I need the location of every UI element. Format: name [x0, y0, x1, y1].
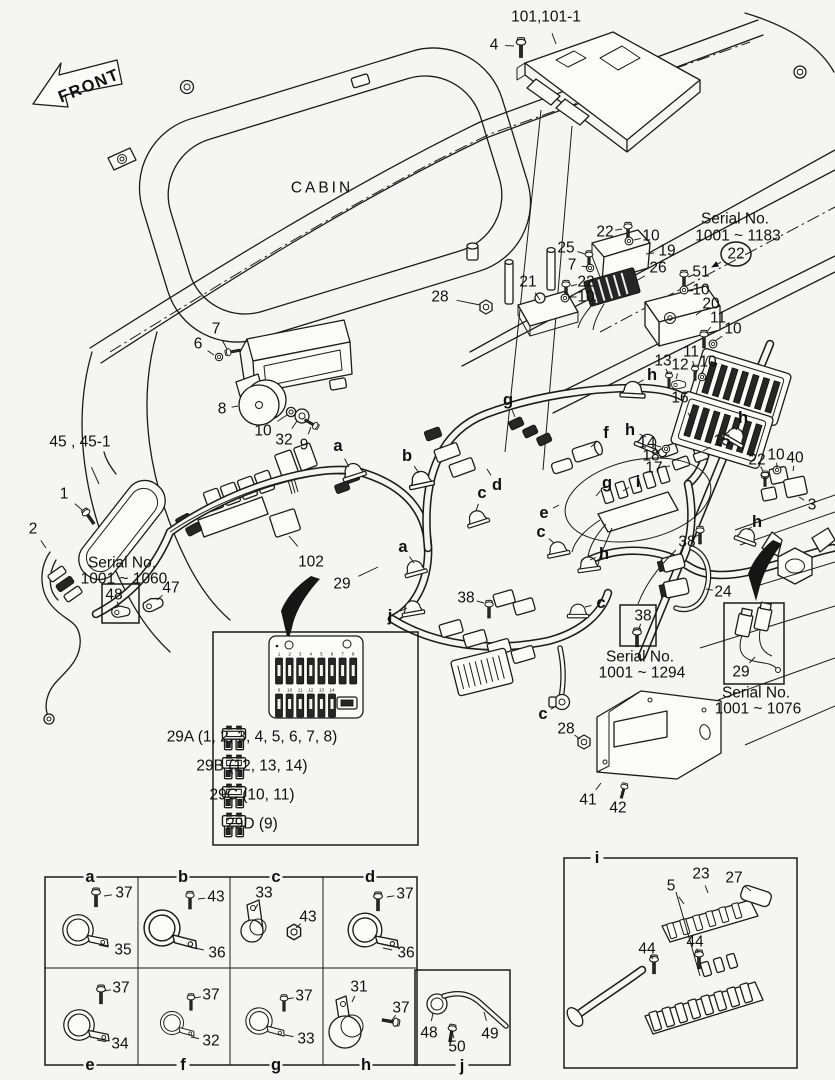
svg-text:Serial No.: Serial No. [701, 211, 769, 228]
callout-p38-boxed: 38 [634, 608, 651, 630]
svg-text:2: 2 [29, 521, 38, 538]
svg-text:j: j [459, 1057, 465, 1075]
svg-text:1: 1 [60, 486, 69, 503]
svg-text:7: 7 [212, 321, 221, 338]
callout-i-5: 5 [667, 878, 684, 905]
svg-text:j: j [387, 607, 393, 625]
svg-text:a: a [85, 868, 95, 886]
callout-cg-33: 33 [285, 1031, 315, 1048]
callout-p51: 51 [688, 264, 710, 281]
mounting-bracket-41 [597, 691, 721, 779]
callout-p42: 42 [609, 791, 626, 817]
svg-text:h: h [738, 409, 748, 427]
callout-cc-43: 43 [296, 909, 317, 929]
callout-p25: 25 [557, 240, 585, 257]
callout-ca-37: 37 [104, 885, 133, 902]
svg-text:CABIN: CABIN [291, 180, 353, 197]
svg-text:Serial No.: Serial No. [88, 555, 156, 572]
svg-text:c: c [536, 523, 545, 541]
svg-text:48: 48 [420, 1025, 437, 1042]
callout-sn1294-1: Serial No. [606, 649, 674, 666]
svg-text:g: g [602, 474, 612, 492]
svg-text:19: 19 [658, 243, 675, 260]
svg-text:Serial No.: Serial No. [606, 649, 674, 666]
fuse-legend-row-29C: 29C (10, 11) [209, 784, 294, 808]
callout-p7b: 7 [212, 321, 227, 350]
svg-text:i: i [595, 849, 600, 867]
callout-tbl-c: c [270, 868, 283, 886]
callout-tbl-a: a [84, 868, 97, 886]
svg-text:8: 8 [218, 401, 227, 418]
callout-sn1183-1: Serial No. [701, 211, 769, 228]
connector-pointer-arrow [748, 540, 782, 601]
svg-text:1001 ~ 1060: 1001 ~ 1060 [81, 571, 168, 588]
callout-p28b: 28 [557, 721, 580, 740]
svg-text:27: 27 [725, 870, 742, 887]
svg-text:29B (12, 13, 14): 29B (12, 13, 14) [196, 758, 307, 775]
fuse-legend: 29A (1, 2, 3, 4, 5, 6, 7, 8)29B (12, 13,… [167, 726, 338, 837]
svg-text:37: 37 [112, 980, 129, 997]
svg-text:c: c [477, 484, 486, 502]
svg-text:29: 29 [333, 576, 350, 593]
svg-text:17: 17 [645, 460, 662, 477]
wire-assembly-2 [42, 552, 83, 724]
svg-text:5: 5 [667, 878, 676, 895]
svg-text:22: 22 [748, 452, 765, 469]
svg-text:25: 25 [557, 240, 574, 257]
svg-text:g: g [503, 391, 513, 409]
svg-text:11: 11 [683, 344, 699, 361]
svg-text:33: 33 [255, 885, 272, 902]
svg-text:37: 37 [295, 988, 312, 1005]
fuse-legend-row-29D: 29D (9) [222, 813, 277, 837]
callout-ch-37: 37 [392, 1000, 410, 1021]
svg-text:9: 9 [278, 688, 281, 693]
callout-p21: 21 [519, 274, 540, 301]
svg-text:36: 36 [397, 945, 414, 962]
callout-c1: c [476, 484, 487, 511]
callout-i-44b: 44 [686, 934, 704, 954]
callout-tbl-f: f [177, 1056, 190, 1074]
callout-p6: 6 [194, 336, 214, 356]
callout-sn1294-2: 1001 ~ 1294 [599, 665, 686, 682]
svg-text:36: 36 [208, 945, 225, 962]
svg-text:34: 34 [111, 1036, 129, 1053]
svg-text:f: f [180, 1056, 186, 1074]
svg-text:29: 29 [732, 664, 749, 681]
svg-text:37: 37 [392, 1000, 409, 1017]
callout-p40: 40 [786, 450, 804, 472]
svg-text:26: 26 [649, 260, 666, 277]
callout-d1: d [487, 469, 502, 494]
fuse-box-inset: 1234567891011121314 29A (1, 2, 3, 4, 5, … [167, 632, 418, 845]
callout-a2: a [398, 538, 414, 563]
svg-text:b: b [178, 868, 188, 886]
svg-text:b: b [402, 447, 412, 465]
callout-p1: 1 [60, 486, 82, 511]
svg-text:51: 51 [692, 264, 709, 281]
callout-ce-37: 37 [104, 980, 130, 997]
callout-sn1076-1: Serial No. [722, 685, 790, 702]
callout-tbl-b: b [177, 868, 190, 886]
svg-text:43: 43 [207, 889, 224, 906]
callout-p22c: 22 [748, 452, 765, 472]
callout-p102: 102 [289, 536, 324, 571]
svg-text:10: 10 [254, 423, 272, 440]
svg-text:29D (9): 29D (9) [226, 816, 278, 833]
svg-text:c: c [538, 705, 547, 723]
svg-text:28: 28 [557, 721, 574, 738]
svg-text:10: 10 [724, 321, 742, 338]
callout-cd-37: 37 [387, 886, 414, 903]
callout-p10f: 10 [767, 447, 785, 469]
callout-cf-37: 37 [194, 987, 220, 1004]
svg-text:41: 41 [579, 792, 596, 809]
svg-text:14: 14 [329, 688, 335, 693]
callout-p48-boxed: 48 [105, 587, 122, 607]
callout-i-23: 23 [692, 866, 709, 894]
svg-text:38: 38 [678, 534, 695, 551]
callout-tbl-d: d [364, 868, 377, 886]
svg-text:35: 35 [114, 942, 131, 959]
fuse-legend-row-29A: 29A (1, 2, 3, 4, 5, 6, 7, 8) [167, 726, 338, 750]
callout-c2: c [536, 523, 554, 543]
svg-text:10: 10 [642, 228, 660, 245]
svg-text:32: 32 [202, 1033, 219, 1050]
roof-stud [181, 81, 194, 94]
svg-text:10: 10 [577, 289, 595, 306]
callout-p2: 2 [29, 521, 46, 549]
svg-text:22: 22 [727, 246, 744, 263]
svg-text:2: 2 [288, 652, 291, 657]
svg-text:6: 6 [194, 336, 203, 353]
svg-text:37: 37 [396, 886, 413, 903]
callout-a1: a [333, 437, 349, 467]
callout-p32: 32 [275, 421, 297, 449]
callout-b1: b [402, 447, 419, 473]
callout-p10c: 10 [570, 289, 595, 306]
svg-text:4: 4 [490, 37, 499, 54]
svg-text:6: 6 [331, 652, 334, 657]
callout-p28a: 28 [431, 289, 480, 306]
svg-text:4: 4 [310, 652, 313, 657]
svg-text:9: 9 [300, 437, 309, 454]
svg-text:29C (10, 11): 29C (10, 11) [209, 787, 294, 804]
callout-cd-36: 36 [383, 945, 415, 962]
callout-inset-i-label: i [591, 849, 604, 867]
svg-text:11: 11 [298, 688, 303, 693]
svg-text:33: 33 [297, 1031, 314, 1048]
callout-e1: e [539, 504, 559, 522]
svg-text:50: 50 [448, 1039, 466, 1056]
svg-text:7: 7 [568, 257, 577, 274]
svg-text:h: h [599, 545, 609, 563]
callout-p41: 41 [579, 783, 601, 809]
svg-text:Serial No.: Serial No. [722, 685, 790, 702]
svg-text:44: 44 [638, 941, 656, 958]
callout-p45: 45 , 45-1 [49, 434, 110, 485]
svg-text:h: h [361, 1056, 371, 1074]
svg-text:g: g [271, 1056, 281, 1074]
svg-text:h: h [647, 366, 657, 384]
callout-p4: 4 [490, 37, 514, 54]
svg-text:12: 12 [308, 688, 314, 693]
svg-text:102: 102 [298, 554, 324, 571]
parts-diagram-page: 1234567891011121314 29A (1, 2, 3, 4, 5, … [0, 0, 835, 1080]
svg-text:42: 42 [609, 800, 626, 817]
callout-p3: 3 [799, 497, 816, 514]
callout-sn1076-2: 1001 ~ 1076 [715, 701, 802, 718]
svg-text:38: 38 [634, 608, 651, 625]
parts-diagram-canvas: 1234567891011121314 29A (1, 2, 3, 4, 5, … [0, 0, 835, 1080]
svg-text:43: 43 [299, 909, 316, 926]
svg-text:h: h [625, 421, 635, 439]
svg-text:44: 44 [686, 934, 704, 951]
svg-text:37: 37 [115, 885, 132, 902]
callout-c4: c [538, 705, 556, 723]
callout-tbl-h: h [360, 1056, 373, 1074]
callout-p7a: 7 [568, 257, 588, 274]
callout-cb-36: 36 [195, 945, 226, 962]
svg-text:28: 28 [431, 289, 448, 306]
callout-cabin-label: CABIN [291, 180, 353, 197]
svg-text:1: 1 [278, 652, 281, 657]
svg-text:31: 31 [350, 979, 367, 996]
svg-text:7: 7 [341, 652, 344, 657]
svg-text:23: 23 [692, 866, 709, 883]
callout-i-27: 27 [725, 870, 751, 892]
svg-text:24: 24 [714, 584, 732, 601]
callout-i-44a: 44 [638, 941, 656, 960]
svg-text:3: 3 [299, 652, 302, 657]
svg-text:d: d [492, 476, 502, 494]
svg-text:c: c [271, 868, 280, 886]
callout-ch-31: 31 [350, 979, 367, 1003]
svg-text:10: 10 [699, 354, 717, 371]
callout-p8: 8 [218, 401, 238, 418]
svg-text:47: 47 [162, 580, 179, 597]
svg-text:48: 48 [105, 587, 122, 604]
callout-tbl-j: j [456, 1057, 469, 1075]
svg-text:1001 ~ 1076: 1001 ~ 1076 [715, 701, 802, 718]
svg-text:5: 5 [320, 652, 323, 657]
inset-i-fuse-holder [564, 858, 797, 1068]
callout-cj-48: 48 [420, 1013, 437, 1042]
svg-text:e: e [85, 1056, 94, 1074]
svg-text:37: 37 [202, 987, 219, 1004]
svg-text:d: d [365, 868, 375, 886]
svg-text:32: 32 [275, 432, 292, 449]
callout-cg-37: 37 [287, 988, 313, 1005]
svg-text:10: 10 [287, 688, 293, 693]
svg-text:49: 49 [481, 1026, 498, 1043]
callout-sn1060-1: Serial No. [88, 555, 156, 572]
svg-text:10: 10 [767, 447, 785, 464]
callout-h4: h [748, 513, 762, 531]
svg-text:16: 16 [671, 390, 688, 407]
callout-cf-32: 32 [191, 1033, 220, 1050]
svg-text:40: 40 [786, 450, 804, 467]
callout-p29a: 29 [333, 567, 378, 593]
callout-tbl-e: e [84, 1056, 97, 1074]
svg-text:3: 3 [808, 497, 817, 514]
svg-text:e: e [539, 504, 548, 522]
callout-p38a: 38 [678, 534, 698, 551]
svg-text:i: i [636, 473, 641, 491]
svg-text:22: 22 [596, 224, 613, 241]
svg-text:h: h [752, 513, 762, 531]
svg-text:1001 ~ 1294: 1001 ~ 1294 [599, 665, 686, 682]
callout-h3: h [736, 409, 748, 430]
svg-text:101,101-1: 101,101-1 [511, 9, 581, 26]
svg-text:8: 8 [352, 652, 355, 657]
svg-text:29A (1, 2, 3, 4, 5, 6, 7, 8): 29A (1, 2, 3, 4, 5, 6, 7, 8) [167, 729, 338, 746]
svg-text:c: c [596, 594, 605, 612]
svg-text:15: 15 [713, 433, 730, 450]
callout-sn1060-2: 1001 ~ 1060 [81, 571, 168, 588]
callout-cb-43: 43 [198, 889, 225, 906]
svg-text:38: 38 [457, 590, 474, 607]
svg-text:13: 13 [319, 688, 325, 693]
svg-text:f: f [603, 424, 609, 442]
callout-p29-boxed: 29 [732, 657, 755, 681]
svg-text:a: a [398, 538, 408, 556]
callout-tbl-g: g [270, 1056, 283, 1074]
svg-text:21: 21 [519, 274, 536, 291]
svg-text:45 , 45-1: 45 , 45-1 [49, 434, 110, 451]
callout-p38b: 38 [457, 590, 484, 607]
svg-text:a: a [333, 437, 343, 455]
